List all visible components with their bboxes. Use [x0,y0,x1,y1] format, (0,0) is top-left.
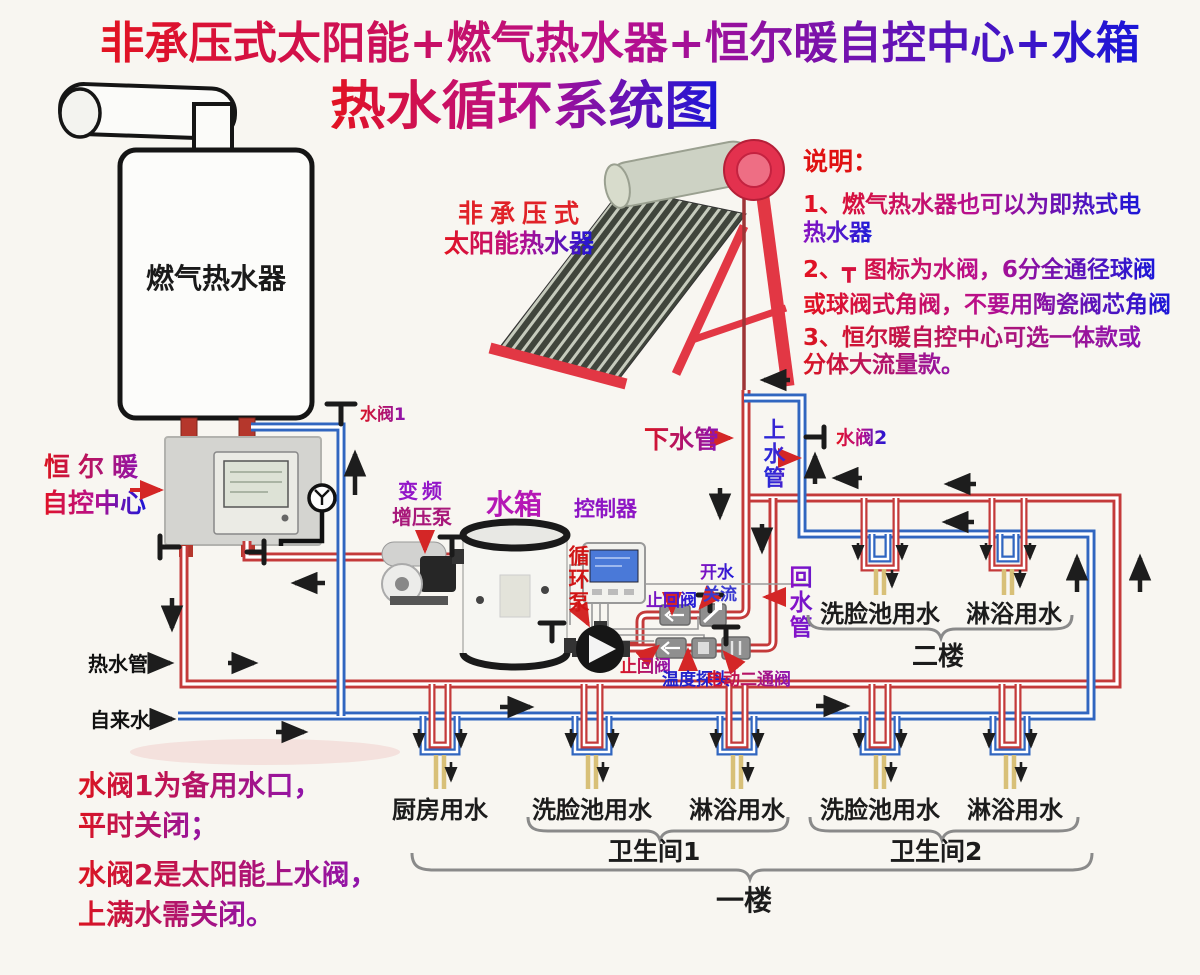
pump-motor [420,556,456,592]
note1-line2: 热水器 [803,220,873,246]
left-note-line1: 水阀1为备用水口， [78,769,321,802]
hot-pipe-label: 热水管 [88,652,148,676]
bathroom1-label: 卫生间1 [608,837,700,866]
basin-label: 洗脸池用水 [820,796,941,824]
solar-label-line2: 太阳能热水器 [444,229,595,258]
heater-port [181,418,197,437]
controller-button [624,589,634,595]
notes-left: 水阀1为备用水口， 平时关闭； 水阀2是太阳能上水阀， 上满水需关闭。 [78,769,377,931]
page-subtitle: 热水循环系统图 [330,77,720,137]
booster-pump [382,542,456,605]
tank-sticker [500,575,530,617]
tank-top-rim [463,522,567,548]
flue-opening [60,89,100,137]
shower-2f-label: 淋浴用水 [966,600,1063,628]
down-pipe-label: 下水管 [644,425,719,454]
left-note-line4: 上满水需关闭。 [78,898,274,931]
electric-valve-label: 电动二通阀 [706,669,791,690]
valve2-icon [806,427,824,447]
tank-fitting [476,596,484,604]
bathroom2-label: 卫生间2 [890,837,982,866]
water-tank [452,522,576,669]
controller-button [592,589,602,595]
notes-right: 说明： 1、燃气热水器也可以为即热式电 热水器 2、┳ 图标为水阀，6分全通径球… [803,147,1171,378]
up-pipe-label: 上水管 [760,418,786,490]
gas-water-heater: 燃气热水器 [59,83,312,437]
tank-fitting [541,586,549,594]
tap-water-label: 自来水 [90,708,151,732]
open-close-label-line1: 开水 [700,562,735,583]
controller [583,543,645,603]
solar-tank-end-inner [737,153,771,187]
left-note-line2: 平时关闭； [78,809,218,842]
control-center-label-line2: 自控中心 [42,488,146,519]
control-center-label-line1: 恒尔暖 [44,452,146,483]
floor1-brace [412,853,1092,879]
controller-button [608,589,618,595]
shower-label: 淋浴用水 [689,796,786,824]
gas-heater-label: 燃气热水器 [146,262,287,295]
floor2-label: 二楼 [912,642,964,672]
valve1-icon [327,404,355,424]
notes-heading: 说明： [803,147,878,176]
basin-2f-label: 洗脸池用水 [820,600,941,628]
left-note-line3: 水阀2是太阳能上水阀， [78,858,377,891]
solar-frame-leg [762,190,788,386]
circulation-pump-label: 循环泵 [566,544,590,614]
solar-label-line1: 非承压式 [458,199,586,228]
control-center-screen [224,461,288,507]
probe-window [698,642,709,654]
booster-pump-label-line2: 增压泵 [392,505,452,529]
valve1-label: 水阀1 [360,404,406,425]
pump-base [390,596,448,605]
kitchen-label: 厨房用水 [392,796,489,824]
note3-line1: 3、恒尔暖自控中心可选一体款或 [803,324,1141,351]
note3-line2: 分体大流量款。 [803,351,964,378]
note1-line1: 1、燃气热水器也可以为即热式电 [803,191,1141,218]
water-tank-label: 水箱 [486,488,542,521]
open-close-label-line2: 关流 [703,584,737,605]
diagram-canvas: 非承压式太阳能+燃气热水器+恒尔暖自控中心+水箱 热水循环系统图 燃气热水器 非… [0,0,1200,975]
return-pipe-label: 回水管 [785,565,813,640]
shower-label: 淋浴用水 [967,796,1064,824]
page-title: 非承压式太阳能+燃气热水器+恒尔暖自控中心+水箱 [100,18,1140,69]
solar-water-heater: 非承压式 太阳能热水器 [444,138,788,392]
floor1-label: 一楼 [716,884,772,917]
booster-pump-label-line1: 变频 [398,479,446,503]
note2-line1: 2、┳ 图标为水阀，6分全通径球阀 [803,256,1156,283]
note2-line2: 或球阀式角阀，不要用陶瓷阀芯角阀 [803,291,1171,318]
control-center-button [282,515,289,522]
basin-label: 洗脸池用水 [532,796,653,824]
watermark [130,739,400,765]
controller-label: 控制器 [574,497,638,521]
check-valve-upper-label: 止回阀 [646,590,697,611]
pump-hub [395,577,409,591]
valve2-label: 水阀2 [836,426,887,449]
